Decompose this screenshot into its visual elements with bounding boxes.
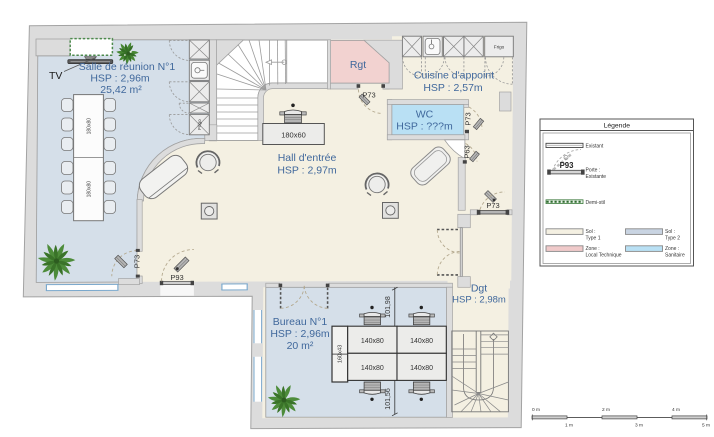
svg-text:HSP : 2,57m: HSP : 2,57m	[423, 82, 483, 94]
svg-text:P73: P73	[464, 112, 473, 125]
svg-text:Frigo: Frigo	[494, 45, 505, 50]
svg-text:TV: TV	[49, 70, 62, 82]
svg-text:Zone :: Zone :	[665, 246, 679, 252]
svg-text:P73: P73	[133, 255, 142, 268]
svg-text:Rgt: Rgt	[350, 59, 366, 71]
svg-text:180x80: 180x80	[87, 118, 93, 135]
svg-text:25,42 m²: 25,42 m²	[100, 84, 142, 96]
svg-text:Cuisine d'appoint: Cuisine d'appoint	[414, 70, 494, 82]
svg-text:Sanitaire: Sanitaire	[665, 253, 685, 259]
svg-text:101,98: 101,98	[385, 296, 392, 318]
svg-text:160x43: 160x43	[338, 345, 344, 363]
svg-text:20 m²: 20 m²	[287, 340, 314, 352]
svg-text:HSP : ???m: HSP : ???m	[396, 121, 453, 133]
svg-text:Sol :: Sol :	[586, 229, 596, 235]
svg-text:101,56: 101,56	[385, 388, 392, 410]
svg-text:Existant: Existant	[586, 144, 604, 150]
svg-text:Local Technique: Local Technique	[586, 253, 622, 259]
svg-text:Porte :: Porte :	[586, 168, 601, 174]
svg-text:Zone :: Zone :	[586, 246, 600, 252]
svg-text:5 m: 5 m	[702, 422, 710, 428]
svg-text:Sol :: Sol :	[665, 229, 675, 235]
svg-text:Frigo: Frigo	[197, 119, 202, 130]
svg-text:0 m: 0 m	[532, 407, 540, 413]
svg-text:HSP : 2,96m: HSP : 2,96m	[270, 328, 330, 340]
svg-text:140x80: 140x80	[361, 338, 384, 345]
svg-text:Dgt: Dgt	[471, 283, 487, 295]
svg-text:2 m: 2 m	[602, 407, 610, 413]
svg-text:Bureau N°1: Bureau N°1	[273, 316, 328, 328]
svg-text:180x80: 180x80	[87, 181, 93, 198]
svg-text:Légende: Légende	[604, 123, 631, 130]
svg-text:Hall d'entrée: Hall d'entrée	[278, 152, 337, 164]
svg-text:HSP : 2,96m: HSP : 2,96m	[90, 73, 150, 85]
svg-text:P63: P63	[463, 145, 472, 158]
svg-text:P93: P93	[560, 161, 575, 170]
svg-text:P73: P73	[486, 201, 499, 210]
svg-text:Type 1: Type 1	[586, 236, 601, 242]
svg-text:HSP : 2,98m: HSP : 2,98m	[452, 295, 506, 306]
svg-text:1 m: 1 m	[565, 422, 573, 428]
svg-text:180x60: 180x60	[281, 131, 306, 140]
svg-text:140x80: 140x80	[361, 365, 384, 372]
svg-text:HSP : 2,97m: HSP : 2,97m	[277, 165, 337, 177]
svg-text:140x80: 140x80	[410, 365, 433, 372]
svg-text:WC: WC	[416, 109, 434, 121]
svg-text:P93: P93	[170, 273, 183, 282]
svg-text:Type 2: Type 2	[665, 236, 680, 242]
svg-text:4 m: 4 m	[672, 407, 680, 413]
svg-text:P73: P73	[362, 91, 375, 100]
svg-text:140x80: 140x80	[410, 338, 433, 345]
svg-text:Demi-stil: Demi-stil	[586, 200, 605, 206]
svg-text:3 m: 3 m	[635, 422, 643, 428]
svg-text:Salle de réunion N°1: Salle de réunion N°1	[79, 61, 176, 73]
svg-text:Existante: Existante	[586, 174, 607, 180]
